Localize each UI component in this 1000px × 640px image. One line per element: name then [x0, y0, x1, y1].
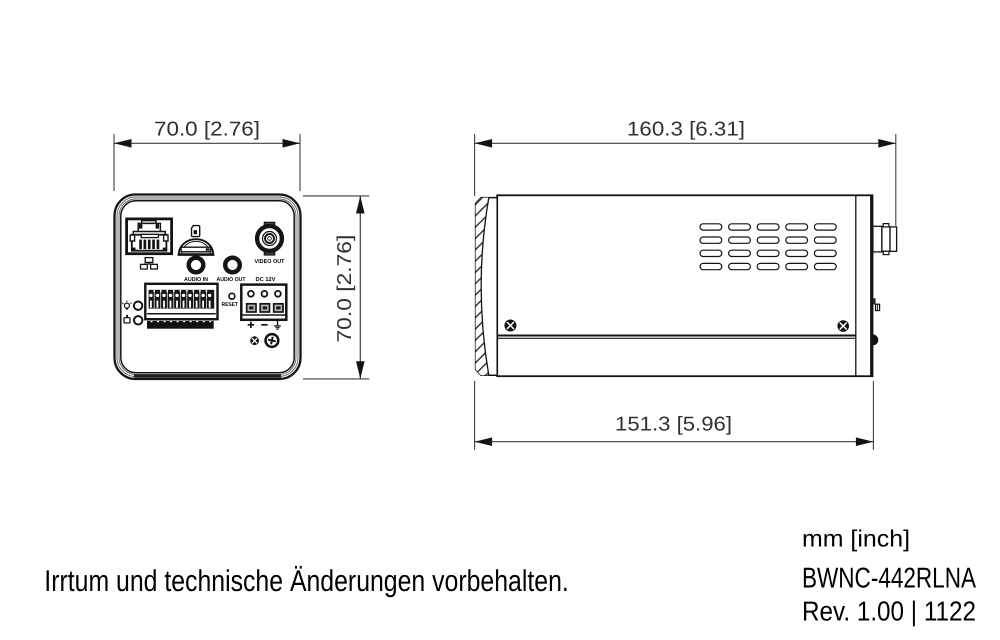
svg-text:RESET: RESET	[222, 302, 239, 308]
svg-text:160.3 [6.31]: 160.3 [6.31]	[627, 118, 745, 140]
svg-text:VIDEO OUT: VIDEO OUT	[255, 259, 286, 265]
svg-text:151.3 [5.96]: 151.3 [5.96]	[615, 414, 732, 436]
svg-text:AUDIO OUT: AUDIO OUT	[217, 277, 247, 283]
svg-text:DC 12V: DC 12V	[256, 277, 276, 283]
svg-text:AUDIO IN: AUDIO IN	[184, 277, 208, 283]
svg-text:70.0 [2.76]: 70.0 [2.76]	[154, 118, 260, 140]
svg-text:Rev. 1.00 | 1122: Rev. 1.00 | 1122	[802, 596, 976, 627]
svg-text:Irrtum und technische Änderung: Irrtum und technische Änderungen vorbeha…	[44, 565, 569, 598]
svg-text:BWNC-442RLNA: BWNC-442RLNA	[802, 563, 977, 595]
svg-text:mm [inch]: mm [inch]	[802, 525, 910, 551]
svg-text:70.0 [2.76]: 70.0 [2.76]	[334, 235, 356, 343]
